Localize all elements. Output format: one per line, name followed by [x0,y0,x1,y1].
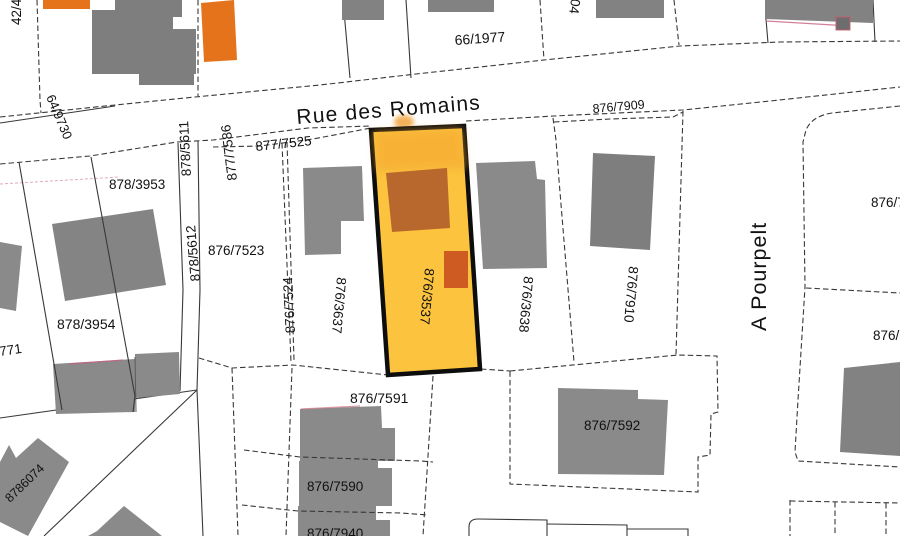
svg-text:878/3954: 878/3954 [57,316,116,332]
svg-text:42/4: 42/4 [9,0,24,25]
svg-text:878/3953: 878/3953 [109,177,165,192]
svg-text:876/7524: 876/7524 [280,276,298,334]
svg-text:876/79: 876/79 [871,195,900,210]
svg-text:876/7523: 876/7523 [208,243,264,258]
svg-text:878/5611: 878/5611 [176,121,194,177]
svg-text:876/75: 876/75 [873,328,900,343]
svg-text:876/7940: 876/7940 [307,526,363,536]
svg-text:904: 904 [566,0,584,15]
svg-text:876/7592: 876/7592 [584,418,640,433]
svg-text:A Pourpelt: A Pourpelt [747,222,771,331]
svg-text:876/7591: 876/7591 [350,390,409,406]
svg-text:771: 771 [0,341,23,359]
svg-text:876/7590: 876/7590 [307,479,363,494]
